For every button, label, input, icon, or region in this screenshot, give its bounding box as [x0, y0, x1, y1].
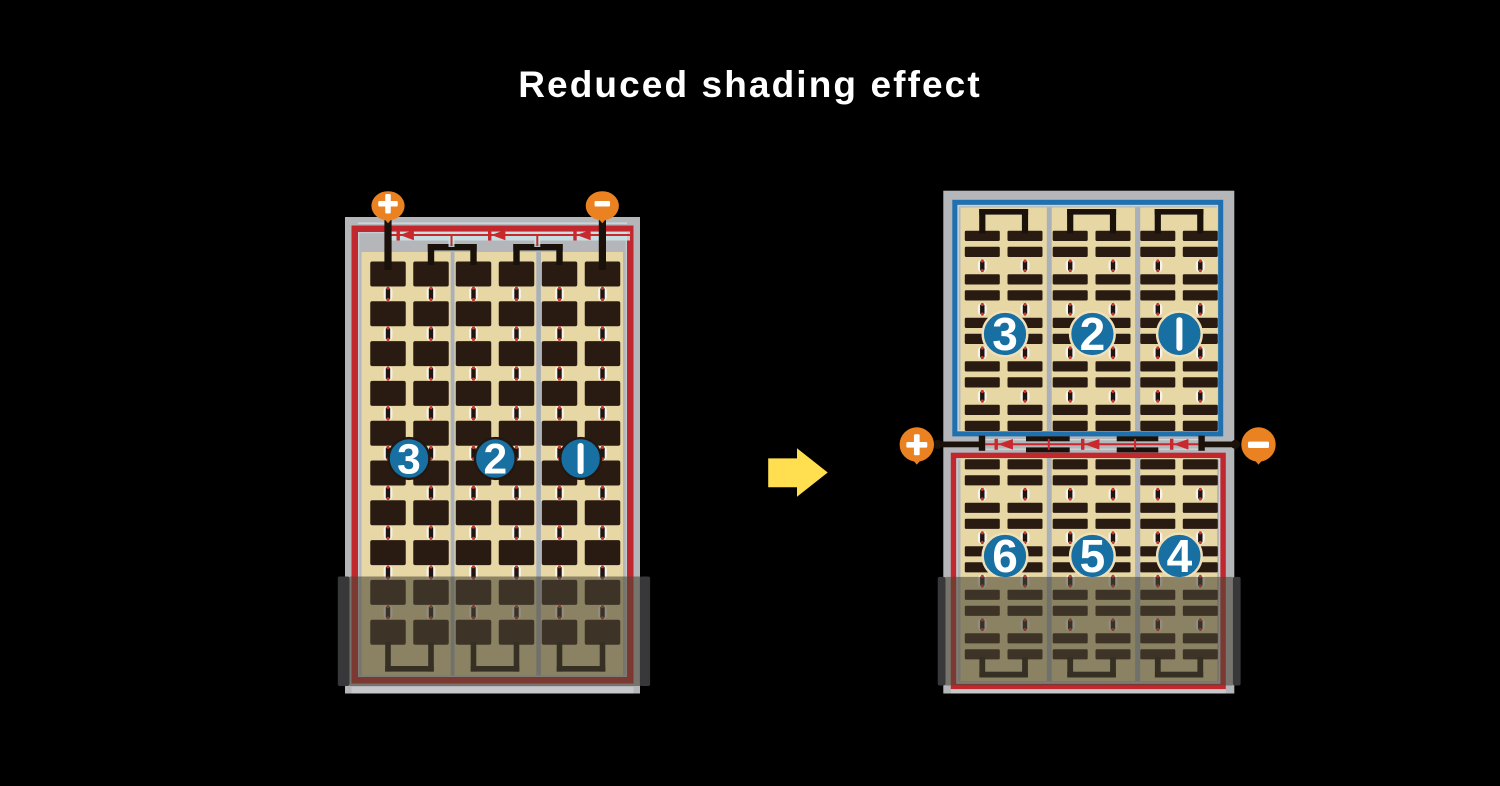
svg-text:Reduced shading effect: Reduced shading effect	[518, 64, 982, 105]
svg-text:3: 3	[397, 436, 421, 483]
svg-text:3: 3	[992, 308, 1018, 360]
svg-text:4: 4	[1167, 530, 1193, 582]
svg-text:2: 2	[483, 436, 507, 483]
svg-text:6: 6	[992, 530, 1018, 582]
svg-text:5: 5	[1080, 530, 1106, 582]
svg-text:2: 2	[1080, 308, 1106, 360]
